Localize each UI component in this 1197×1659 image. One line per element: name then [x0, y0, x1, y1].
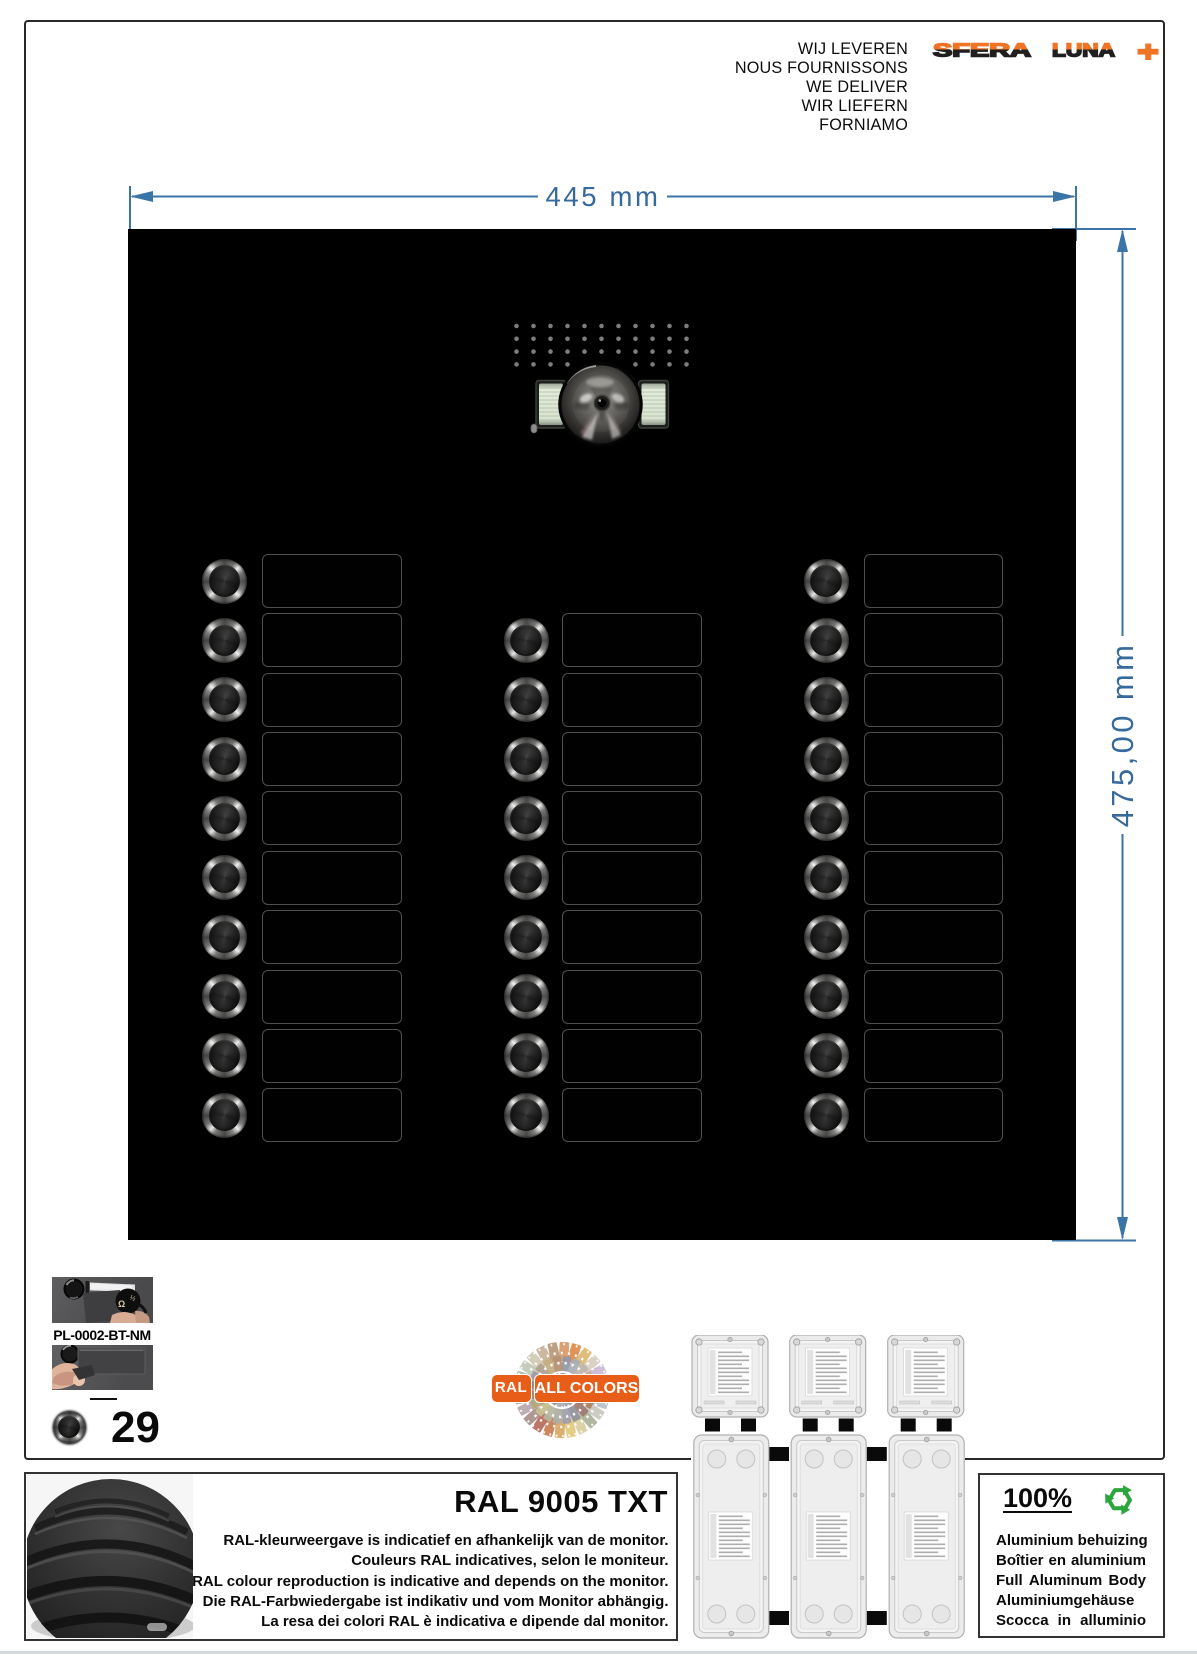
- svg-text:475,00 mm: 475,00 mm: [1105, 642, 1140, 828]
- svg-text:Ω: Ω: [118, 1299, 125, 1309]
